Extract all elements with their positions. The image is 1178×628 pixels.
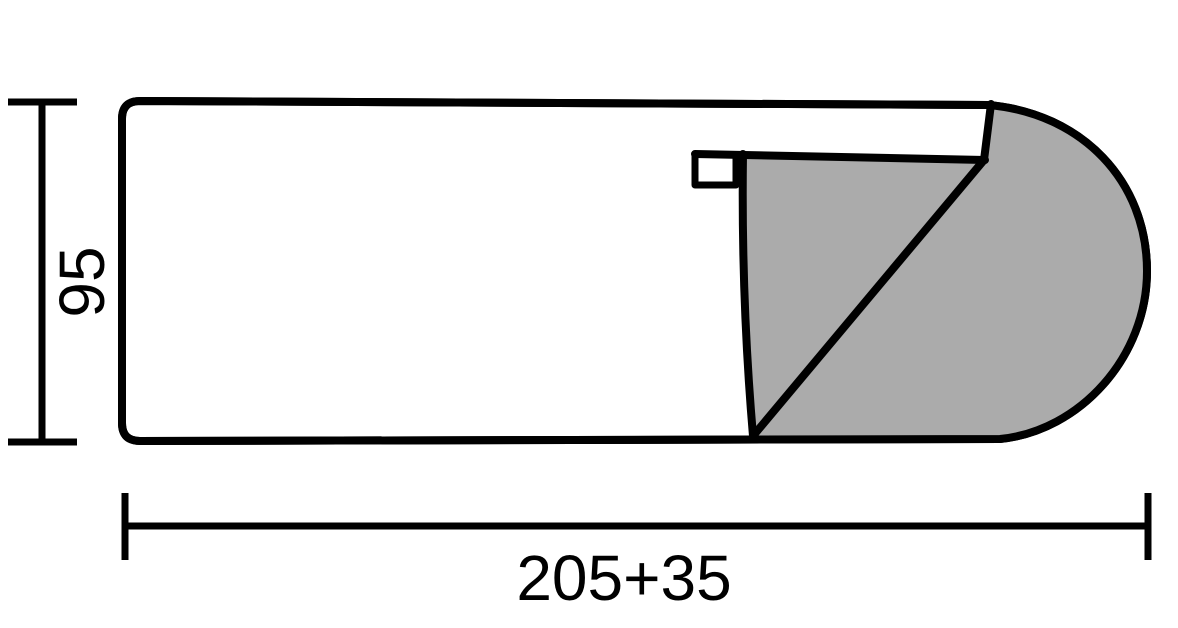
sleeping-bag-diagram: 95 205+35 [0,0,1178,628]
sleeping-bag [122,101,1147,441]
height-dimension-label: 95 [46,246,118,317]
diagram-canvas: 95 205+35 [0,0,1178,628]
length-dimension-label: 205+35 [516,542,731,614]
